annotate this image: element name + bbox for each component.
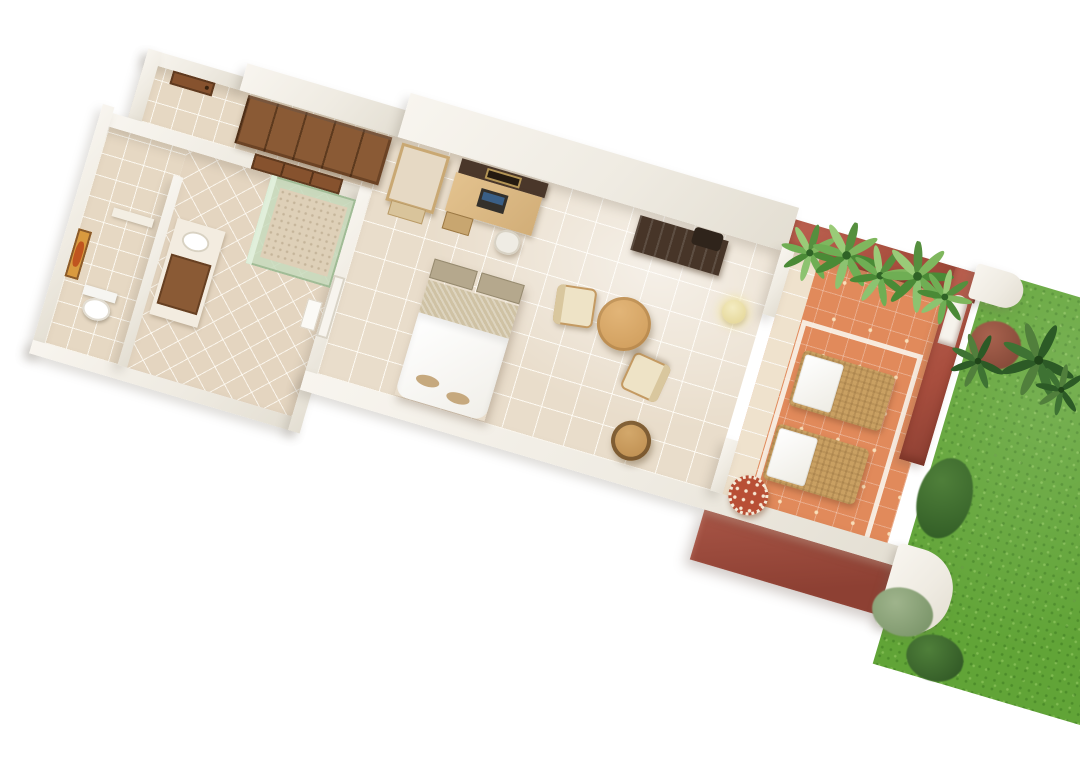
entry-door-handle-icon bbox=[204, 85, 209, 90]
laptop-screen bbox=[481, 192, 504, 206]
floor-plan-scene bbox=[0, 0, 1080, 720]
lounger-cushion bbox=[792, 354, 845, 413]
dining-chair-left bbox=[552, 284, 597, 329]
lounger-cushion bbox=[766, 428, 819, 487]
